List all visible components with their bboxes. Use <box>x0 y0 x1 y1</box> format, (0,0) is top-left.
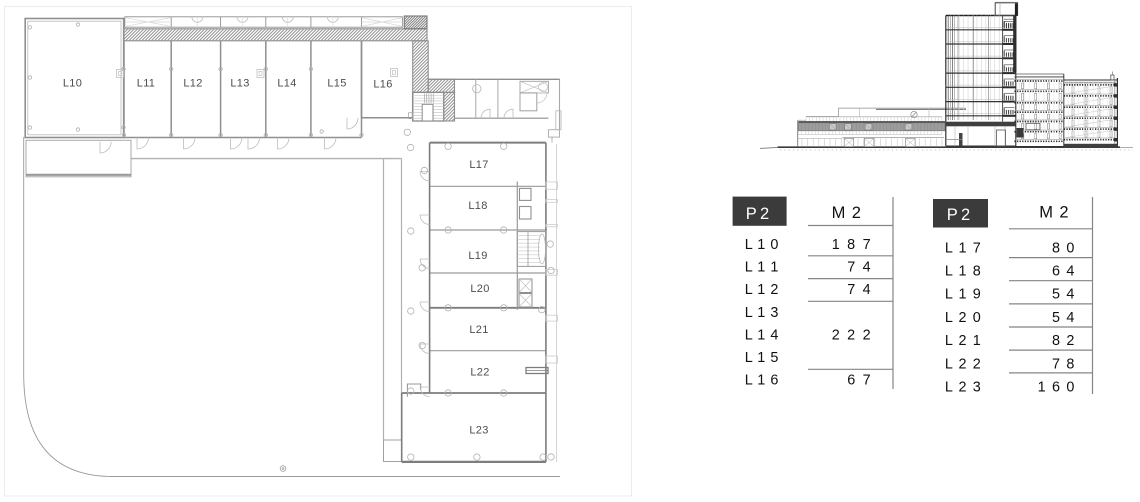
svg-text:L11: L11 <box>137 78 155 90</box>
svg-text:L13: L13 <box>230 78 249 90</box>
svg-text:1 8 7: 1 8 7 <box>832 237 873 253</box>
svg-text:L 2 2: L 2 2 <box>945 356 982 372</box>
svg-text:L16: L16 <box>373 79 392 91</box>
svg-text:8 2: 8 2 <box>1052 333 1076 349</box>
svg-text:L 1 3: L 1 3 <box>745 305 779 321</box>
svg-text:5 4: 5 4 <box>1052 287 1076 303</box>
svg-text:P 2: P 2 <box>746 205 769 223</box>
svg-text:L 1 0: L 1 0 <box>745 237 779 253</box>
svg-text:7 4: 7 4 <box>847 282 872 298</box>
svg-text:7 8: 7 8 <box>1052 356 1076 372</box>
svg-text:7 4: 7 4 <box>847 260 872 276</box>
svg-text:L 1 7: L 1 7 <box>945 240 982 256</box>
svg-text:L 1 2: L 1 2 <box>745 282 779 298</box>
svg-text:L 2 0: L 2 0 <box>945 310 982 326</box>
svg-text:L 1 1: L 1 1 <box>745 260 779 276</box>
svg-text:L14: L14 <box>277 78 296 90</box>
svg-text:L 1 9: L 1 9 <box>945 287 982 303</box>
svg-text:5 4: 5 4 <box>1052 310 1076 326</box>
svg-text:L 2 3: L 2 3 <box>945 380 982 396</box>
svg-text:L 1 6: L 1 6 <box>745 373 779 389</box>
svg-text:2 2 2: 2 2 2 <box>832 327 873 343</box>
svg-text:L 1 8: L 1 8 <box>945 264 982 280</box>
svg-text:M 2: M 2 <box>1039 204 1069 222</box>
svg-text:L19: L19 <box>468 250 487 262</box>
svg-text:L17: L17 <box>469 159 488 171</box>
svg-text:L 1 5: L 1 5 <box>745 350 779 366</box>
svg-text:8 0: 8 0 <box>1052 240 1076 256</box>
svg-text:1 6 0: 1 6 0 <box>1038 380 1076 396</box>
svg-text:L15: L15 <box>327 78 346 90</box>
svg-text:P 2: P 2 <box>947 206 970 224</box>
svg-text:L23: L23 <box>469 425 488 437</box>
svg-text:6 4: 6 4 <box>1052 264 1076 280</box>
svg-text:L 1 4: L 1 4 <box>745 327 779 343</box>
svg-text:L21: L21 <box>469 324 488 336</box>
svg-text:L20: L20 <box>470 283 489 295</box>
svg-text:6 7: 6 7 <box>847 373 872 389</box>
svg-text:M 2: M 2 <box>832 204 862 222</box>
svg-text:L 2 1: L 2 1 <box>945 333 982 349</box>
svg-text:L22: L22 <box>470 367 489 379</box>
svg-text:L10: L10 <box>63 78 82 90</box>
svg-text:L12: L12 <box>183 78 202 90</box>
svg-text:L18: L18 <box>468 200 487 212</box>
